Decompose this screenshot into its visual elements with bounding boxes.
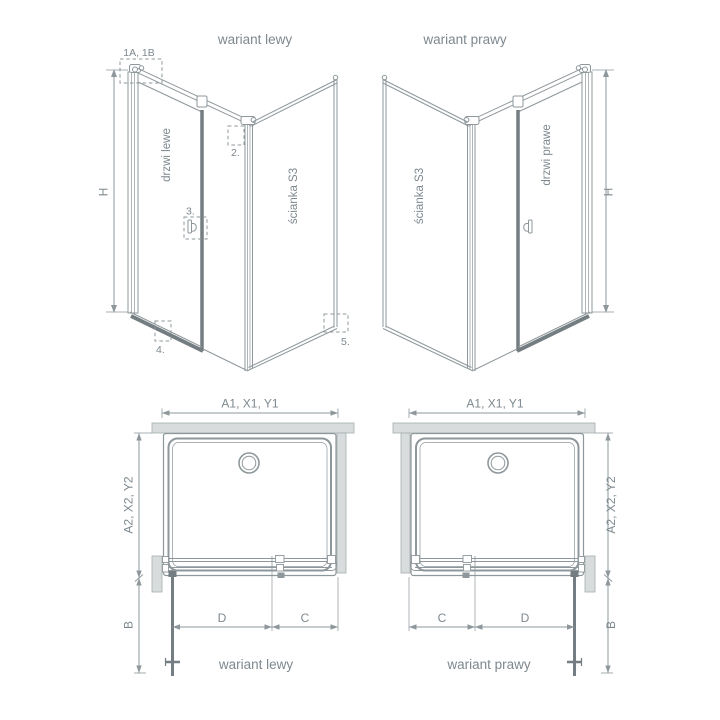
right-variant-3d-diagram: wariant prawy H drzwi prawe ścianka S3 bbox=[355, 25, 625, 390]
shower-enclosure-technical-drawing: wariant lewy 1A, 1B 2. 3. 4. 5. H drzwi … bbox=[0, 0, 720, 720]
left-plan-depth-label: A2, X2, Y2 bbox=[122, 476, 136, 533]
left-plan-title: wariant lewy bbox=[218, 657, 294, 672]
marker-3-label: 3. bbox=[186, 206, 195, 218]
marker-1-label: 1A, 1B bbox=[123, 47, 155, 59]
left-variant-3d-diagram: wariant lewy 1A, 1B 2. 3. 4. 5. H drzwi … bbox=[95, 25, 365, 390]
marker-5-label: 5. bbox=[341, 336, 350, 348]
right-plan-width-label: A1, X1, Y1 bbox=[466, 397, 523, 411]
right-plan-title: wariant prawy bbox=[446, 657, 531, 672]
right-3d-title: wariant prawy bbox=[422, 32, 507, 47]
right-plan-c-label: C bbox=[438, 611, 447, 625]
left-3d-door-label: drzwi lewe bbox=[161, 128, 173, 182]
left-plan-b-label: B bbox=[122, 621, 136, 629]
left-variant-plan-diagram: A1, X1, Y1 A2, X2, Y2 B D C wariant lewy bbox=[125, 395, 360, 690]
left-plan-c-label: C bbox=[301, 611, 310, 625]
right-3d-height-label: H bbox=[602, 188, 616, 197]
right-variant-plan-diagram: A1, X1, Y1 A2, X2, Y2 B C D wariant praw… bbox=[387, 395, 622, 690]
right-3d-wall-label: ścianka S3 bbox=[414, 168, 426, 224]
left-3d-height-label: H bbox=[97, 188, 111, 197]
marker-2-label: 2. bbox=[231, 147, 240, 159]
left-3d-title: wariant lewy bbox=[217, 32, 293, 47]
marker-4-label: 4. bbox=[156, 344, 165, 356]
right-plan-d-label: D bbox=[521, 611, 530, 625]
left-3d-wall-label: ścianka S3 bbox=[288, 168, 300, 224]
left-plan-width-label: A1, X1, Y1 bbox=[221, 397, 278, 411]
left-plan-d-label: D bbox=[218, 611, 227, 625]
right-plan-depth-label: A2, X2, Y2 bbox=[604, 476, 618, 533]
right-plan-b-label: B bbox=[604, 621, 618, 629]
right-3d-door-label: drzwi prawe bbox=[541, 124, 553, 185]
